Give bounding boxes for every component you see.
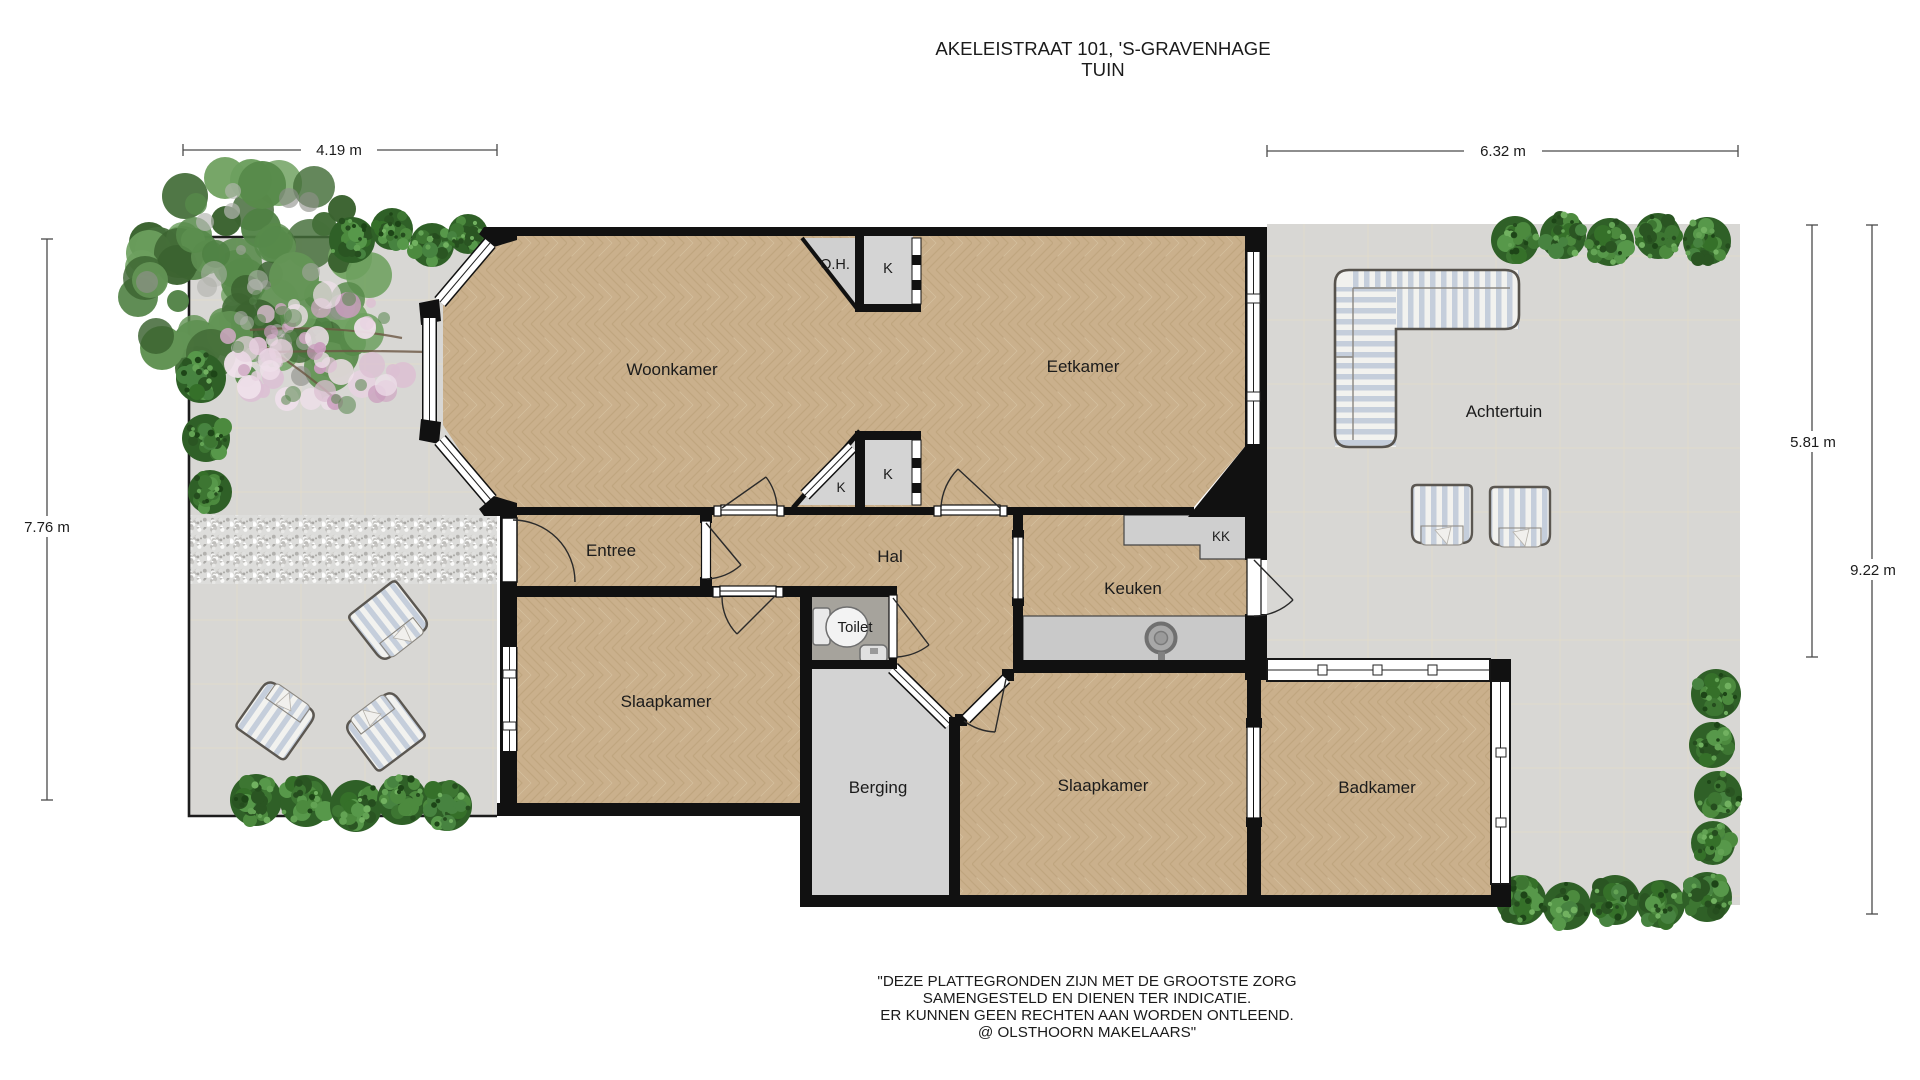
svg-text:Keuken: Keuken (1104, 579, 1162, 598)
svg-text:Eetkamer: Eetkamer (1047, 357, 1120, 376)
svg-text:K: K (883, 467, 893, 483)
svg-text:Slaapkamer: Slaapkamer (621, 692, 712, 711)
svg-text:9.22 m: 9.22 m (1850, 562, 1896, 579)
svg-text:Slaapkamer: Slaapkamer (1058, 776, 1149, 795)
svg-text:7.76 m: 7.76 m (24, 519, 70, 536)
svg-text:Berging: Berging (849, 778, 908, 797)
svg-text:Badkamer: Badkamer (1338, 778, 1416, 797)
svg-text:K: K (883, 261, 893, 277)
svg-text:AKELEISTRAAT 101, 'S-GRAVENHAG: AKELEISTRAAT 101, 'S-GRAVENHAGE (935, 38, 1270, 59)
svg-text:Entree: Entree (586, 541, 636, 560)
svg-text:KK: KK (1212, 529, 1230, 544)
svg-text:Toilet: Toilet (837, 619, 873, 636)
svg-text:ER KUNNEN GEEN RECHTEN AAN WOR: ER KUNNEN GEEN RECHTEN AAN WORDEN ONTLEE… (880, 1007, 1294, 1024)
svg-text:Hal: Hal (877, 547, 903, 566)
svg-text:4.19 m: 4.19 m (316, 142, 362, 159)
svg-text:Woonkamer: Woonkamer (626, 360, 718, 379)
svg-text:SAMENGESTELD EN DIENEN TER IND: SAMENGESTELD EN DIENEN TER INDICATIE. (923, 990, 1252, 1007)
svg-text:@ OLSTHOORN MAKELAARS": @ OLSTHOORN MAKELAARS" (978, 1024, 1196, 1041)
svg-text:6.32 m: 6.32 m (1480, 143, 1526, 160)
svg-text:TUIN: TUIN (1081, 59, 1124, 80)
svg-text:O.H.: O.H. (820, 257, 850, 273)
svg-text:"DEZE PLATTEGRONDEN ZIJN MET D: "DEZE PLATTEGRONDEN ZIJN MET DE GROOTSTE… (877, 973, 1296, 990)
svg-text:5.81 m: 5.81 m (1790, 434, 1836, 451)
svg-text:Achtertuin: Achtertuin (1466, 402, 1543, 421)
svg-text:K: K (836, 480, 845, 495)
